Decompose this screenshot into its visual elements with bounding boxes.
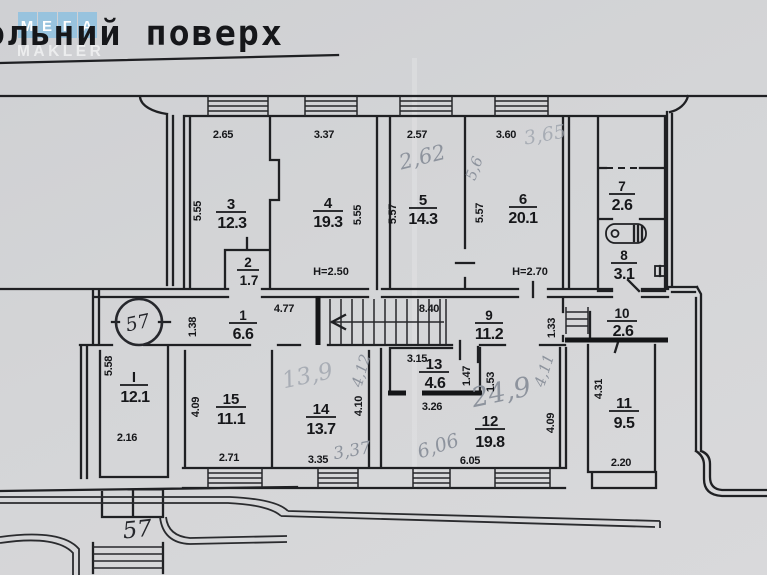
room-area: 4.6 xyxy=(425,375,446,392)
scanned-floor-plan: М Е Г А MAKLER ольний поверх 57 xyxy=(0,0,767,575)
dim-depth: 5.55 xyxy=(192,201,204,221)
handwritten-dim: 3,37 xyxy=(332,438,373,464)
room-number: 2 xyxy=(244,255,252,270)
handwritten-dim: 2,62 xyxy=(396,140,448,175)
apartment-number: 57 xyxy=(116,299,162,345)
room-area: 19.3 xyxy=(313,214,343,231)
room-11-labels: 11 9.5 4.31 2.20 xyxy=(593,379,635,469)
room-3-labels: 3 12.3 2.65 5.55 xyxy=(192,129,247,232)
room-number: I xyxy=(132,369,136,386)
walls-main xyxy=(0,96,767,573)
room-area: 11.2 xyxy=(475,326,504,343)
room-4-labels: 4 19.3 3.37 5.55 H=2.50 xyxy=(313,129,364,278)
room-number: 12 xyxy=(482,413,499,430)
room-number: 14 xyxy=(313,401,330,418)
room-number: 7 xyxy=(618,179,626,194)
room-5-labels: 5 14.3 2.57 5.57 2,62 5,6 xyxy=(387,129,487,228)
scan-fold-crease xyxy=(412,58,417,490)
room-area: 1.7 xyxy=(240,273,259,288)
dim-depth: 5.57 xyxy=(387,204,399,224)
sidewalk-curbs xyxy=(0,497,660,575)
handwritten-area: 24,9 xyxy=(468,371,534,414)
room-area: 9.5 xyxy=(614,415,635,432)
handwritten-dim: 6,06 xyxy=(415,429,462,463)
dim-width: 2.71 xyxy=(219,452,239,464)
room-number: 13 xyxy=(426,356,443,373)
room-10-labels: 10 2.6 xyxy=(613,306,634,340)
room-14-labels: 14 13.7 4.10 3.35 13,9 4,12 3,37 xyxy=(280,352,375,466)
dim-niche: 1.53 xyxy=(485,372,497,392)
dim-top: 3.26 xyxy=(422,401,442,413)
room-number: 6 xyxy=(519,191,527,208)
room-area: 13.7 xyxy=(306,421,336,438)
room-area: 2.6 xyxy=(612,197,633,214)
room-15-labels: 15 11.1 4.09 2.71 xyxy=(190,391,246,464)
entrance-steps xyxy=(93,547,163,568)
entrance-number-handwritten: 57 xyxy=(121,516,153,545)
dim-width: 3.35 xyxy=(308,454,328,466)
room-number: 8 xyxy=(620,248,628,263)
dim-depth: 1.47 xyxy=(461,366,473,386)
dim-depth: 5.55 xyxy=(352,205,364,225)
handwritten-dim: 4,11 xyxy=(530,352,558,390)
room-area: 11.1 xyxy=(217,411,246,428)
dim-width: 2.57 xyxy=(407,129,427,141)
room-number: 15 xyxy=(223,391,240,408)
dim-depth: 4.31 xyxy=(593,379,605,399)
dim-width: 6.05 xyxy=(460,455,480,467)
ceiling-height: H=2.50 xyxy=(313,266,349,278)
dim-width: 3.15 xyxy=(407,353,427,365)
dim-depth: 5.58 xyxy=(103,356,115,376)
handwritten-dim: 4,12 xyxy=(348,352,375,390)
room-area: 14.3 xyxy=(408,211,438,228)
room-number: 4 xyxy=(324,195,333,212)
room-7-labels: 7 2.6 xyxy=(612,179,633,214)
dim-depth: 4.10 xyxy=(353,396,365,416)
room-number: 3 xyxy=(227,196,235,213)
room-2-labels: 2 1.7 xyxy=(240,255,259,288)
dim-depth: 1.38 xyxy=(187,317,199,337)
dim-width: 4.77 xyxy=(274,303,294,315)
handwritten-area: 13,9 xyxy=(280,358,336,394)
room-area: 12.3 xyxy=(217,215,247,232)
dim-depth: 5.57 xyxy=(474,203,486,223)
room-area: 12.1 xyxy=(120,389,150,406)
handwritten-dim: 3,65 xyxy=(522,121,567,150)
dim-depth: 1.33 xyxy=(546,318,558,338)
dim-depth: 4.09 xyxy=(545,413,557,433)
dim-width: 2.16 xyxy=(117,432,137,444)
room-number: 11 xyxy=(616,395,632,412)
dim-width: 8.40 xyxy=(419,303,439,315)
room-8-labels: 8 3.1 xyxy=(614,248,635,283)
room-number: 5 xyxy=(419,192,427,209)
dim-depth: 4.09 xyxy=(190,397,202,417)
dim-width: 3.37 xyxy=(314,129,334,141)
dim-width: 3.60 xyxy=(496,129,516,141)
building-walls xyxy=(0,96,767,573)
ceiling-height: H=2.70 xyxy=(512,266,548,278)
room-6-labels: 6 20.1 3.60 5.57 H=2.70 3,65 xyxy=(474,121,568,278)
bathtub-drain-icon xyxy=(612,230,619,237)
apartment-number-value: 57 xyxy=(124,310,153,337)
room-area: 6.6 xyxy=(233,326,254,343)
room-I-labels: I 12.1 5.58 2.16 xyxy=(103,356,150,444)
room-area: 19.8 xyxy=(475,434,505,451)
room-area: 20.1 xyxy=(508,210,538,227)
room-number: 10 xyxy=(614,306,629,321)
dim-width: 2.65 xyxy=(213,129,233,141)
room-area: 3.1 xyxy=(614,266,635,283)
dim-width: 2.20 xyxy=(611,457,631,469)
room-number: 9 xyxy=(485,308,493,323)
room-number: 1 xyxy=(239,308,247,323)
room-area: 2.6 xyxy=(613,323,634,340)
entrance-and-sidewalk xyxy=(0,497,660,575)
page-title: ольний поверх xyxy=(0,14,284,54)
